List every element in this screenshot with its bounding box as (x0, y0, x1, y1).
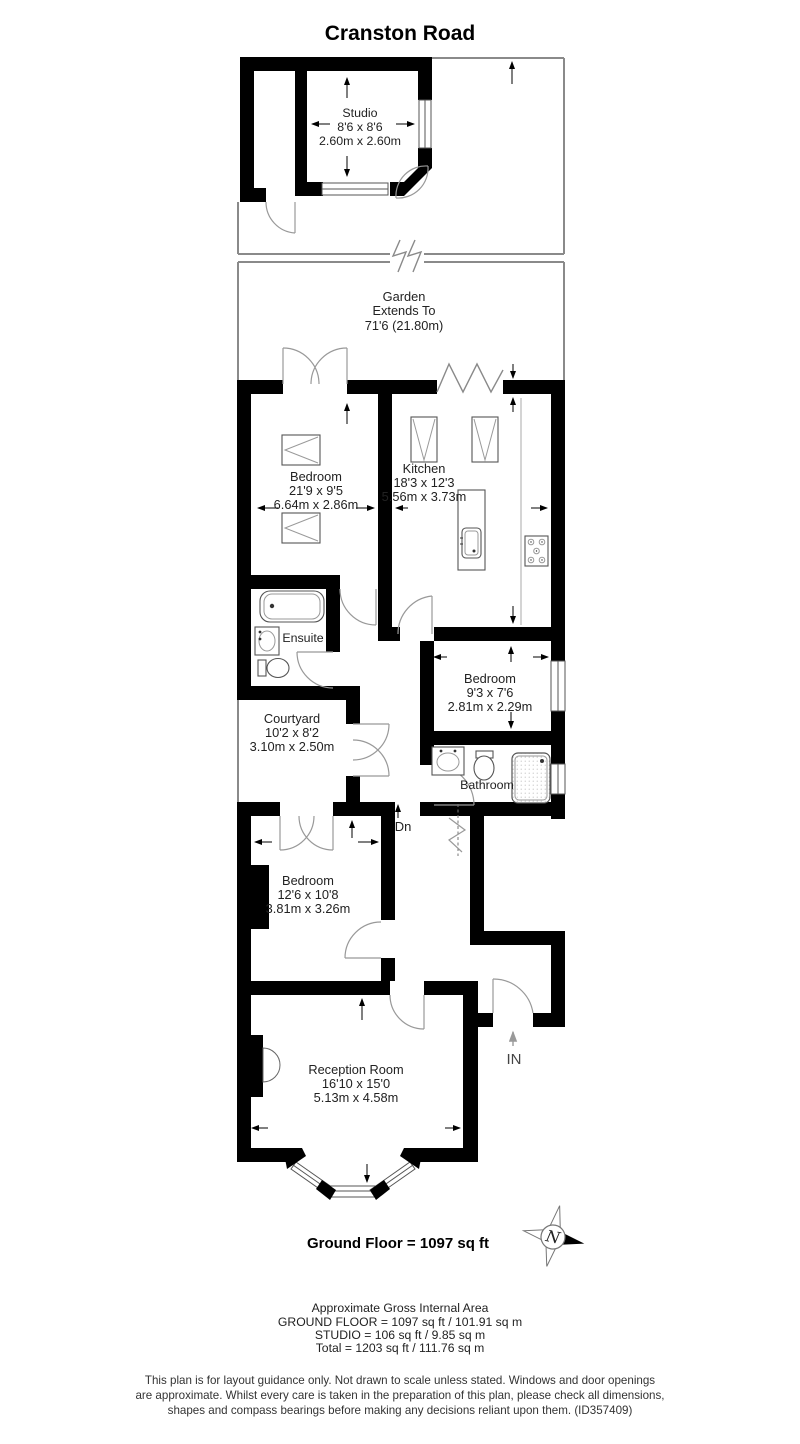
room-label-reception-name: Reception Room (308, 1062, 403, 1077)
bathroom-sink-icon (432, 747, 464, 775)
room-label-bedroom-front-metric: 3.81m x 3.26m (266, 901, 351, 916)
bedroom-front-door (345, 922, 381, 958)
studio-window-right (419, 100, 431, 148)
area-summary: Approximate Gross Internal Area GROUND F… (278, 1301, 522, 1355)
studio-window-bottom (322, 183, 388, 195)
stairs-dn-label: Dn (395, 819, 412, 834)
room-label-bedroom-rear-name: Bedroom (290, 469, 342, 484)
room-label-bedroom-middle-metric: 2.81m x 2.29m (448, 699, 533, 714)
hob-icon (525, 536, 548, 566)
wardrobe-icon (282, 513, 320, 543)
side-passage-door (266, 202, 295, 233)
room-label-studio-imperial: 8'6 x 8'6 (337, 120, 382, 134)
boundary-break-symbol (390, 240, 424, 272)
room-label-bedroom-middle-name: Bedroom (464, 671, 516, 686)
shower-icon (512, 753, 550, 803)
bathroom-toilet-icon (474, 751, 494, 780)
floor-total-label: Ground Floor = 1097 sq ft (307, 1235, 489, 1252)
disclaimer: This plan is for layout guidance only. N… (135, 1374, 664, 1417)
studio-label: Studio 8'6 x 8'6 2.60m x 2.60m (319, 106, 401, 148)
room-label-bedroom-rear-metric: 6.64m x 2.86m (274, 497, 359, 512)
ensuite-sink-icon (255, 627, 279, 655)
garden-extends: Extends To (372, 303, 435, 318)
room-label-courtyard-name: Courtyard (264, 711, 320, 726)
room-label-bedroom-front-name: Bedroom (282, 873, 334, 888)
compass-rose: N (517, 1199, 589, 1272)
reception-label: Reception Room 16'10 x 15'0 5.13m x 4.58… (308, 1062, 403, 1105)
kitchen-label: Kitchen 18'3 x 12'3 5.56m x 3.73m (382, 461, 467, 504)
bathroom-window (551, 764, 565, 794)
courtyard-french-doors (353, 724, 389, 776)
kitchen-unit-icon (411, 417, 437, 462)
room-label-bathroom: Bathroom (460, 778, 514, 792)
room-label-reception-metric: 5.13m x 4.58m (314, 1090, 399, 1105)
room-label-courtyard-metric: 3.10m x 2.50m (250, 739, 335, 754)
bedroom-rear-hall-door (340, 589, 376, 625)
bedroom-rear-french-doors (283, 348, 347, 384)
fireplace (263, 1048, 280, 1082)
area-studio: STUDIO = 106 sq ft / 9.85 sq m (315, 1328, 485, 1342)
reception-door (390, 995, 424, 1029)
room-label-bedroom-rear-imperial: 21'9 x 9'5 (289, 483, 343, 498)
bedroom-front-label: Bedroom 12'6 x 10'8 3.81m x 3.26m (266, 873, 351, 916)
garden-name: Garden (383, 289, 426, 304)
room-label-bedroom-middle-imperial: 9'3 x 7'6 (467, 685, 514, 700)
bedroom-middle-window (551, 661, 565, 711)
plan-title: Cranston Road (325, 22, 476, 45)
bedroom-middle-label: Bedroom 9'3 x 7'6 2.81m x 2.29m (448, 671, 533, 714)
area-total: Total = 1203 sq ft / 111.76 sq m (316, 1341, 485, 1355)
disclaimer-line3: shapes and compass bearings before makin… (168, 1404, 633, 1417)
disclaimer-line1: This plan is for layout guidance only. N… (145, 1374, 655, 1387)
room-label-studio-name: Studio (342, 106, 377, 120)
ensuite-door (297, 652, 333, 688)
disclaimer-line2: are approximate. Whilst every care is ta… (135, 1389, 664, 1402)
area-heading: Approximate Gross Internal Area (312, 1301, 489, 1315)
room-label-kitchen-name: Kitchen (403, 461, 446, 476)
floorplan-drawing: Cranston Road (0, 0, 800, 1444)
ensuite-toilet-icon (258, 659, 289, 678)
courtyard-label: Courtyard 10'2 x 8'2 3.10m x 2.50m (250, 711, 335, 754)
island-sink-icon (460, 528, 481, 558)
room-label-kitchen-metric: 5.56m x 3.73m (382, 489, 467, 504)
entrance-label: IN (507, 1051, 522, 1068)
garden-dimension: 71'6 (21.80m) (365, 318, 444, 333)
entrance-door (493, 979, 533, 1013)
room-label-kitchen-imperial: 18'3 x 12'3 (393, 475, 454, 490)
kitchen-lobby-door (398, 596, 432, 634)
area-ground-floor: GROUND FLOOR = 1097 sq ft / 101.91 sq m (278, 1315, 522, 1329)
room-label-studio-metric: 2.60m x 2.60m (319, 134, 401, 148)
bay-window (283, 1148, 423, 1200)
bath-icon (260, 591, 324, 622)
courtyard-bedroom-french-doors (280, 816, 333, 850)
kitchen-unit-icon (472, 417, 498, 462)
room-label-ensuite: Ensuite (282, 631, 323, 645)
room-label-courtyard-imperial: 10'2 x 8'2 (265, 725, 319, 740)
kitchen-bifold-door (437, 364, 503, 392)
room-label-reception-imperial: 16'10 x 15'0 (322, 1076, 390, 1091)
floorplan-page: Cranston Road (0, 0, 800, 1444)
wardrobe-icon (282, 435, 320, 465)
room-label-bedroom-front-imperial: 12'6 x 10'8 (277, 887, 338, 902)
garden-label: Garden Extends To 71'6 (21.80m) (365, 289, 444, 333)
bedroom-rear-label: Bedroom 21'9 x 9'5 6.64m x 2.86m (274, 469, 359, 512)
